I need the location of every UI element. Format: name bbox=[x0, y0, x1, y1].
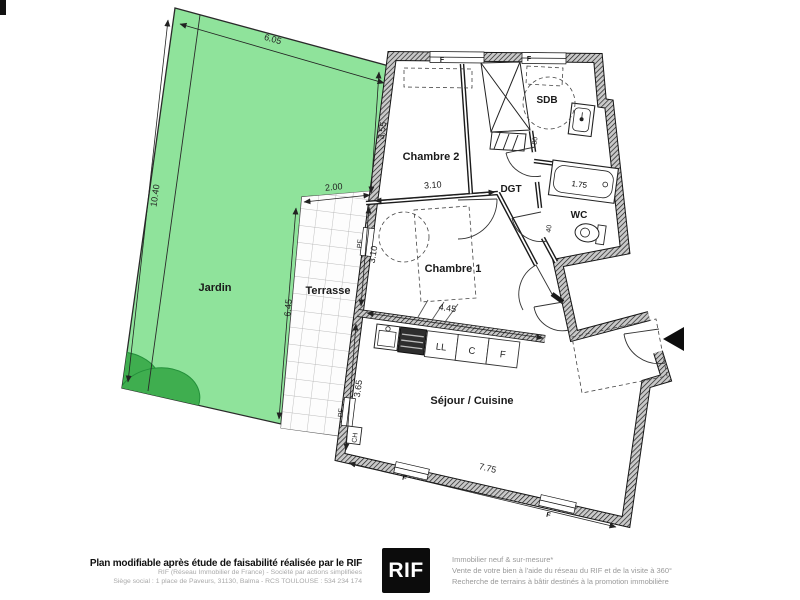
room-label-terrasse: Terrasse bbox=[305, 285, 350, 297]
floor-plan: LL C F CH bbox=[0, 0, 800, 545]
rif-logo: RIF bbox=[382, 548, 430, 593]
dim-cloison-wc: 40 bbox=[546, 224, 554, 233]
footer-service-2: Vente de votre bien à l'aide du réseau d… bbox=[452, 565, 672, 576]
dim-terrasse-depth: 6.45 bbox=[282, 299, 293, 317]
footer: Plan modifiable après étude de faisabili… bbox=[0, 545, 800, 600]
footer-service-1: Immobilier neuf & sur-mesure* bbox=[452, 554, 672, 565]
window-f1 bbox=[430, 52, 484, 63]
footer-services-block: Immobilier neuf & sur-mesure* Vente de v… bbox=[452, 545, 672, 587]
dim-terrasse-width: 2.00 bbox=[325, 181, 343, 192]
label-chaudiere: CH bbox=[351, 432, 359, 443]
room-label-chambre1: Chambre 1 bbox=[425, 263, 482, 275]
rif-logo-text: RIF bbox=[388, 559, 423, 583]
floorplan-page: { "plan": { "rooms": { "jardin": "Jardin… bbox=[0, 0, 800, 600]
bathroom-sink bbox=[568, 103, 595, 137]
label-porte-fenetre-2: PF bbox=[337, 408, 345, 418]
label-fenetre-2: F bbox=[527, 56, 532, 63]
footer-service-3: Recherche de terrains à bâtir destinés à… bbox=[452, 576, 672, 587]
room-label-dgt: DGT bbox=[500, 184, 521, 195]
dim-chambre2-width: 3.10 bbox=[424, 179, 442, 190]
room-label-wc: WC bbox=[571, 210, 588, 221]
footer-company-line: RIF (Réseau Immobilier de France) - Soci… bbox=[0, 569, 362, 578]
boiler-box: CH bbox=[346, 426, 362, 445]
label-fenetre-3: F bbox=[401, 475, 407, 483]
entrance-arrow-icon bbox=[663, 327, 684, 351]
room-label-chambre2: Chambre 2 bbox=[403, 151, 460, 163]
label-fenetre-1: F bbox=[440, 57, 445, 64]
footer-legal-block: Plan modifiable après étude de faisabili… bbox=[0, 545, 362, 586]
room-label-sejour: Séjour / Cuisine bbox=[430, 395, 513, 407]
footer-registration-line: Siège social : 1 place de Paveurs, 31130… bbox=[0, 578, 362, 587]
label-lave-linge: LL bbox=[435, 341, 447, 353]
label-fenetre-4: F bbox=[545, 512, 551, 520]
room-label-jardin: Jardin bbox=[198, 282, 231, 294]
scan-corner-mark bbox=[0, 0, 6, 15]
room-label-sdb: SDB bbox=[536, 95, 557, 106]
footer-disclaimer: Plan modifiable après étude de faisabili… bbox=[0, 558, 362, 569]
label-porte-fenetre-1: PF bbox=[356, 239, 364, 249]
dim-gaine: 80 bbox=[532, 136, 540, 145]
